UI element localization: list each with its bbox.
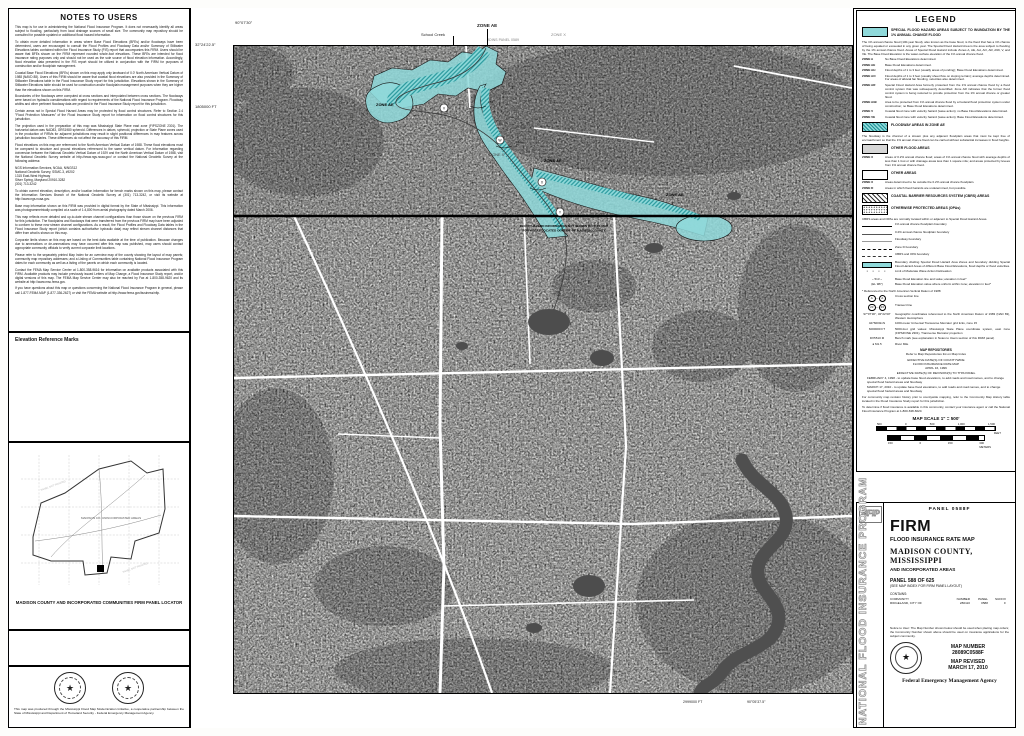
- map-scale-title: MAP SCALE 1" = 500': [861, 416, 1011, 421]
- corner-coordinate-lon: 90°07'30": [235, 20, 252, 25]
- see-map-index: (SEE MAP INDEX FOR FIRM PANEL LAYOUT): [890, 584, 1009, 588]
- svg-text:ZONE AE: ZONE AE: [544, 158, 562, 163]
- geo-coordinates-symbol: 97°07'30", 32°22'30": [862, 313, 892, 321]
- corner-coordinate-bottom-lon: 90°05'37.5": [747, 700, 765, 704]
- floodway-note: The floodway is the channel of a stream …: [862, 134, 1010, 142]
- boundary-line-symbol: [862, 239, 892, 244]
- svg-text:FLOOD HAZARD INFORMATION NOT S: FLOOD HAZARD INFORMATION NOT SHOWN ON TH…: [520, 224, 608, 228]
- eagle-icon: ★: [117, 677, 139, 699]
- sfha-intro: The 1% annual chance flood (100-year flo…: [862, 40, 1010, 56]
- line-desc: Boundary dividing Special Flood Hazard A…: [895, 261, 1010, 269]
- svg-text:ZONE AE: ZONE AE: [376, 102, 394, 107]
- legend-sfha-header-row: SPECIAL FLOOD HAZARD AREAS SUBJECT TO IN…: [862, 26, 1010, 38]
- river-mile-desc: River Mile: [895, 343, 1010, 347]
- legend-line-row: 0.2% annual chance floodplain boundary: [862, 231, 1010, 237]
- opa-swatch: [862, 205, 888, 215]
- erm-title: Elevation Reference Marks: [15, 337, 183, 343]
- zone-x-collar-label: ZONE X: [551, 32, 566, 37]
- elevation-reference-marks-panel: Elevation Reference Marks: [8, 332, 190, 442]
- legend-zone-row: ZONE ANo Base Flood Elevations determine…: [862, 58, 1010, 62]
- legend-geo-row: 97°07'30", 32°22'30"Geographic coordinat…: [862, 313, 1010, 321]
- boundary-line-symbol: [862, 262, 892, 267]
- legend-cbrs-row: COASTAL BARRIER RESOURCES SYSTEM (CBRS) …: [862, 192, 1010, 203]
- notes-paragraph: Boundaries of the floodways were compute…: [15, 94, 183, 106]
- cbrs-swatch: [862, 193, 888, 203]
- legend-floodway-row: FLOODWAY AREAS IN ZONE AE: [862, 121, 1010, 132]
- eagle-icon: ★: [59, 677, 81, 699]
- legend-transect-row: 23—23 Transect line: [862, 304, 1010, 312]
- zone-desc: Areas determined to be outside the 0.2% …: [885, 181, 1010, 185]
- scale-meters-unit: METERS: [881, 445, 991, 449]
- locator-caption: MADISON COUNTY AND INCORPORATED COMMUNIT…: [11, 600, 187, 605]
- bfe-desc: Base Flood Elevation line and value; ele…: [895, 278, 1010, 282]
- legend-crosssection-row: A—A Cross section line: [862, 295, 1010, 303]
- legend-opa-row: OTHERWISE PROTECTED AREAS (OPAs): [862, 204, 1010, 215]
- zone-desc: Areas in which flood hazards are undeter…: [885, 187, 1010, 191]
- zone-desc: Flood depths of 1 to 3 feet (usually she…: [885, 75, 1010, 83]
- legend-panel: LEGEND SPECIAL FLOOD HAZARD AREAS SUBJEC…: [856, 10, 1016, 472]
- zone-ae-collar-label: ZONE AE: [477, 23, 497, 28]
- boundary-line-symbol: [862, 247, 892, 252]
- cbrs-header: COASTAL BARRIER RESOURCES SYSTEM (CBRS) …: [891, 194, 1010, 202]
- legend-utm-row: 4276000mN1000-meter Universal Transverse…: [862, 322, 1010, 326]
- utm-symbol: 4276000mN: [862, 322, 892, 326]
- insurance-note: To determine if flood insurance is avail…: [862, 405, 1010, 413]
- leader-line: [487, 29, 488, 46]
- notes-paragraph: To obtain current elevation, description…: [15, 189, 183, 201]
- legend-otherareas-row: OTHER AREAS: [862, 169, 1010, 180]
- zone-name: ZONE V: [862, 110, 882, 114]
- legend-zone-row: ZONE AOFlood depths of 1 to 3 feet (usua…: [862, 75, 1010, 83]
- zone-name: ZONE AE: [862, 64, 882, 68]
- line-desc: Limit of Moderate Wave Action Delineatio…: [895, 270, 1010, 276]
- blank-box: [8, 630, 190, 666]
- aerial-texture: [234, 46, 852, 693]
- notes-paragraph: This map reflects more detailed and up-t…: [15, 215, 183, 235]
- panel-header: PANEL 0588F: [890, 507, 1009, 512]
- notes-to-users-panel: NOTES TO USERS This map is for use in ad…: [8, 8, 190, 332]
- bfe-desc: Base Flood Elevation value where uniform…: [895, 283, 1010, 287]
- svg-text:ZONE AE: ZONE AE: [666, 192, 684, 197]
- zone-name: ZONE D: [862, 187, 882, 191]
- zone-name: ZONE X: [862, 156, 882, 168]
- map-number-block: MAP NUMBER 28089C0588F MAP REVISED MARCH…: [927, 644, 1009, 671]
- map-revised-date: MARCH 17, 2010: [927, 665, 1009, 671]
- sfha-swatch: [862, 27, 888, 37]
- shaded-x-swatch: [862, 144, 888, 154]
- zone-desc: Coastal flood zone with velocity hazard …: [885, 110, 1010, 114]
- sfha-header: SPECIAL FLOOD HAZARD AREAS SUBJECT TO IN…: [891, 28, 1010, 37]
- zone-name: ZONE X: [862, 181, 882, 185]
- line-desc: 0.2% annual chance floodplain boundary: [895, 231, 1010, 237]
- legend-zone-row: ZONE DAreas in which flood hazards are u…: [862, 187, 1010, 191]
- cross-section-desc: Cross section line: [895, 295, 1010, 303]
- zone-ae-area: [676, 215, 732, 241]
- joins-panel-top-label: JOINS PANEL 0589: [487, 38, 519, 42]
- legend-bfe-row: ~ 513 ~Base Flood Elevation line and val…: [862, 278, 1010, 282]
- current-panel-marker: [97, 565, 104, 572]
- legend-zone-row: ZONE AHFlood depths of 1 to 3 feet (usua…: [862, 69, 1010, 73]
- panel-not-printed-label: PANEL NOT PRINTED: [40, 479, 66, 492]
- ngs-address: NGS Information Services, NOAA, N/NGS12 …: [15, 166, 183, 186]
- notes-paragraph: Base map information shown on this FIRM …: [15, 204, 183, 212]
- notes-paragraph: To obtain more detailed information in a…: [15, 40, 183, 69]
- panel-locator: MADISON CO. UNINCORPORATED AREAS PANEL N…: [8, 442, 190, 630]
- fema-seal: ★: [890, 642, 922, 674]
- opa-header: OTHERWISE PROTECTED AREAS (OPAs): [891, 206, 1010, 214]
- notes-paragraph: Please refer to the separately printed M…: [15, 253, 183, 265]
- nfip-vertical-text: NATIONAL FLOOD INSURANCE PROGRAM: [857, 523, 883, 725]
- legend-zone-row: ZONE XAreas determined to be outside the…: [862, 181, 1010, 185]
- corner-coordinate-lat: 32°24'22.5": [195, 42, 215, 47]
- seals-panel: ★ ★ This map was produced through the Mi…: [8, 666, 190, 728]
- zone-desc: Coastal flood zone with velocity hazard …: [885, 116, 1010, 120]
- svg-text:ZONE X: ZONE X: [490, 153, 505, 157]
- map-number-value: 28089C0588F: [927, 650, 1009, 656]
- geo-desc: Geographic coordinates referenced to the…: [895, 313, 1010, 321]
- zone-desc: Special Flood Hazard Area formerly prote…: [885, 84, 1010, 100]
- nfip-sidebar: NFIP NATIONAL FLOOD INSURANCE PROGRAM: [857, 503, 884, 727]
- firm-title: FIRM: [890, 518, 1009, 536]
- zone-name: ZONE AH: [862, 69, 882, 73]
- production-credit: This map was produced through the Missis…: [14, 707, 184, 715]
- legend-benchmark-row: DX5510 ⊗Bench mark (see explanation in N…: [862, 337, 1010, 341]
- revisions-block: EFFECTIVE DATE(S) OF REVISION(S) TO THIS…: [861, 371, 1011, 393]
- legend-line-row: 1% annual chance floodplain boundary: [862, 223, 1010, 229]
- line-desc: 1% annual chance floodplain boundary: [895, 223, 1010, 229]
- legend-line-row: Floodway boundary: [862, 238, 1010, 244]
- bfe-zone-symbol: (EL 987): [862, 283, 892, 287]
- line-desc: Floodway boundary: [895, 238, 1010, 244]
- title-block: NFIP NATIONAL FLOOD INSURANCE PROGRAM PA…: [856, 502, 1016, 728]
- boundary-line-symbol: ▪ ▪ ▪ ▪: [862, 271, 892, 276]
- notes-paragraph: Certain areas not in Special Flood Hazar…: [15, 109, 183, 121]
- zone-x-swatch: [862, 170, 888, 180]
- map-repositories-desc: Refer to Map Repositories list on Map In…: [906, 352, 966, 356]
- notes-paragraph: The projection used in the preparation o…: [15, 124, 183, 140]
- line-desc: Zone D boundary: [895, 246, 1010, 252]
- incorporated-areas: AND INCORPORATED AREAS: [890, 567, 1009, 572]
- zone-name: ZONE AO: [862, 75, 882, 83]
- history-note: For community map revision history prior…: [862, 395, 1010, 403]
- legend-line-row: ▪ ▪ ▪ ▪Limit of Moderate Wave Action Del…: [862, 270, 1010, 276]
- notes-title: NOTES TO USERS: [15, 13, 183, 22]
- bfe-value: 286: [488, 100, 493, 104]
- boundary-line-symbol: [862, 254, 892, 259]
- svg-text:FOR AREAS LOCATED OUTSIDE OF M: FOR AREAS LOCATED OUTSIDE OF MADISON COU…: [523, 228, 607, 232]
- notes-paragraph: Contact the FEMA Map Service Center at 1…: [15, 268, 183, 284]
- bfe-value: 282: [516, 140, 521, 144]
- legend-otherflood-row: OTHER FLOOD AREAS: [862, 144, 1010, 155]
- firm-map[interactable]: 286 282 V W X Y: [234, 46, 852, 693]
- notes-paragraph: If you have questions about this map or …: [15, 286, 183, 294]
- legend-title: LEGEND: [861, 14, 1011, 24]
- stateplane-symbol: 6000000 FT: [862, 328, 892, 336]
- zone-name: ZONE VE: [862, 116, 882, 120]
- legend-zone-row: ZONE VCoastal flood zone with velocity h…: [862, 110, 1010, 114]
- legend-line-row: Zone D boundary: [862, 246, 1010, 252]
- legend-bfe-row: (EL 987)Base Flood Elevation value where…: [862, 283, 1010, 287]
- legend-zone-row: ZONE XAreas of 0.2% annual chance flood;…: [862, 156, 1010, 168]
- contains-label: CONTAINS:: [890, 592, 1009, 596]
- zone-name: ZONE A: [862, 58, 882, 62]
- firm-subtitle: FLOOD INSURANCE RATE MAP: [890, 537, 1009, 543]
- cross-section-symbol: A—A: [862, 295, 892, 303]
- legend-line-row: Boundary dividing Special Flood Hazard A…: [862, 261, 1010, 269]
- effective-date-block: EFFECTIVE DATE(S) OF COUNTYWIDE FLOOD IN…: [861, 358, 1011, 370]
- legend-zone-row: ZONE ARSpecial Flood Hazard Area formerl…: [862, 84, 1010, 100]
- legend-line-row: CBRS and OPA boundary: [862, 253, 1010, 259]
- notes-paragraph: Flood elevations on this map are referen…: [15, 143, 183, 163]
- agency-name: Federal Emergency Management Agency: [890, 678, 1009, 684]
- legend-zone-row: ZONE A99Area to be protected from 1% ann…: [862, 101, 1010, 109]
- state-name: MISSISSIPPI: [890, 556, 1009, 565]
- benchmark-desc: Bench mark (see explanation in Notes to …: [895, 337, 1010, 341]
- panel-locator-map: MADISON CO. UNINCORPORATED AREAS PANEL N…: [11, 445, 187, 593]
- benchmark-symbol: DX5510 ⊗: [862, 337, 892, 341]
- line-desc: CBRS and OPA boundary: [895, 253, 1010, 259]
- utm-desc: 1000-meter Universal Transverse Mercator…: [895, 322, 1010, 326]
- svg-text:ZONE X: ZONE X: [586, 239, 601, 243]
- locator-county-label: MADISON CO. UNINCORPORATED AREAS: [81, 516, 141, 520]
- transect-symbol: 23—23: [862, 304, 892, 312]
- transect-desc: Transect line: [895, 304, 1010, 312]
- floodway-header: FLOODWAY AREAS IN ZONE AE: [891, 123, 1010, 131]
- notes-paragraph: Coastal Base Flood Elevations (BFEs) sho…: [15, 71, 183, 91]
- zone-name: ZONE AR: [862, 84, 882, 100]
- zone-desc: Areas of 0.2% annual chance flood; areas…: [885, 156, 1010, 168]
- cbrs-note: CBRS areas and OPAs are normally located…: [862, 217, 1010, 221]
- grid-label-bottom: 2999000 FT: [683, 700, 702, 704]
- spc-desc: 5000-foot grid values: Mississippi State…: [895, 328, 1010, 336]
- other-flood-header: OTHER FLOOD AREAS: [891, 146, 1010, 154]
- county-note: FLOOD HAZARD INFORMATION NOT SHOWN ON TH…: [520, 224, 608, 232]
- navd-note: * Referenced to the North American Verti…: [862, 289, 1010, 293]
- zone-name: ZONE A99: [862, 101, 882, 109]
- floodway-swatch: [862, 122, 888, 132]
- legend-spc-row: 6000000 FT5000-foot grid values: Mississ…: [862, 328, 1010, 336]
- notice-to-user: Notice to User: The Map Number shown bel…: [890, 627, 1009, 639]
- eagle-icon: ★: [895, 646, 918, 669]
- stream-label-school-creek: School Creek: [421, 32, 445, 37]
- zone-desc: Area to be protected from 1% annual chan…: [885, 101, 1010, 109]
- boundary-line-symbol: [862, 224, 892, 229]
- community-table-row: RIDGELAND, CITY OF2801100588F: [890, 601, 1009, 605]
- bfe-line-symbol: ~ 513 ~: [862, 278, 892, 282]
- legend-rivermile-row: ● M1.5River Mile: [862, 343, 1010, 347]
- zone-desc: Flood depths of 1 to 3 feet (usually are…: [885, 69, 1010, 73]
- notes-paragraph: This map is for use in administering the…: [15, 25, 183, 37]
- dhs-fema-seal: ★: [112, 672, 144, 704]
- boundary-line-symbol: [862, 232, 892, 237]
- legend-zone-row: ZONE AEBase Flood Elevations determined.: [862, 64, 1010, 68]
- grid-label-left: 1805000 FT: [195, 104, 217, 109]
- river-mile-symbol: ● M1.5: [862, 343, 892, 347]
- title-block-content: PANEL 0588F FIRM FLOOD INSURANCE RATE MA…: [884, 503, 1015, 727]
- map-sheet: 90°07'30" 32°24'22.5" 1805000 FT School …: [190, 8, 854, 728]
- svg-text:ZONE X: ZONE X: [516, 125, 531, 129]
- firm-sheet: NOTES TO USERS This map is for use in ad…: [0, 0, 1024, 736]
- zone-desc: Base Flood Elevations determined.: [885, 64, 1010, 68]
- legend-zone-row: ZONE VECoastal flood zone with velocity …: [862, 116, 1010, 120]
- mississippi-state-seal: ★: [54, 672, 86, 704]
- other-areas-header: OTHER AREAS: [891, 171, 1010, 179]
- zone-desc: No Base Flood Elevations determined.: [885, 58, 1010, 62]
- notes-paragraph: Corporate limits shown on this map are b…: [15, 238, 183, 250]
- map-neatline: 286 282 V W X Y: [233, 45, 853, 694]
- county-name: MADISON COUNTY,: [890, 547, 1009, 556]
